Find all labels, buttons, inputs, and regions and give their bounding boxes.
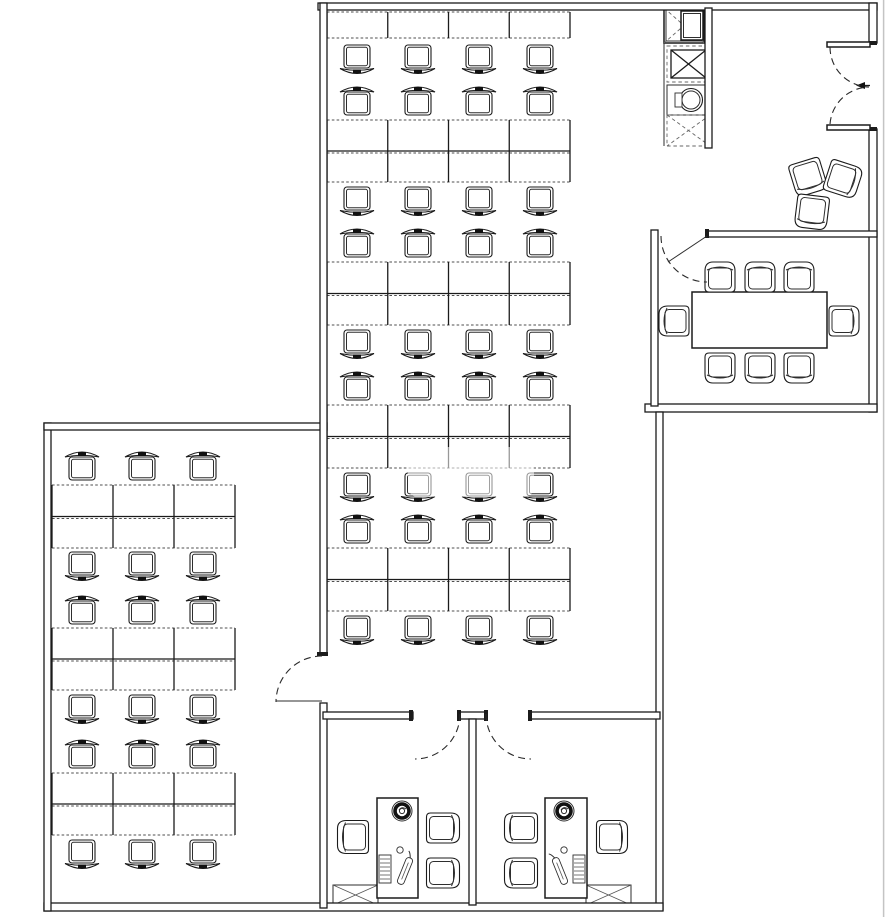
task-chair bbox=[340, 473, 374, 502]
chair-seat bbox=[466, 330, 492, 353]
wall-conference-bottom-wall bbox=[645, 404, 877, 412]
chair-seat bbox=[527, 520, 553, 543]
task-chair bbox=[401, 515, 435, 543]
chair-back-tick bbox=[536, 498, 544, 502]
wall-right-wall-upper bbox=[869, 3, 877, 43]
chair-seat bbox=[405, 616, 431, 639]
chair-back-tick bbox=[78, 452, 86, 456]
task-chair bbox=[462, 515, 496, 543]
chair-back-tick bbox=[353, 212, 361, 216]
wall-cap bbox=[409, 710, 413, 721]
wall-cap bbox=[317, 652, 328, 656]
wall-conference-left-wall bbox=[651, 230, 658, 406]
chair-seat bbox=[69, 695, 95, 718]
conference-chair bbox=[784, 353, 814, 383]
task-chair bbox=[523, 87, 557, 115]
chair-back-tick bbox=[414, 212, 422, 216]
desk-bank bbox=[327, 120, 570, 182]
chair-seat bbox=[405, 187, 431, 210]
task-chair bbox=[462, 372, 496, 400]
chair-seat bbox=[69, 840, 95, 863]
chair-back-tick bbox=[536, 641, 544, 645]
task-chair bbox=[462, 87, 496, 115]
wall-bottom-wall bbox=[44, 903, 663, 911]
desk-bank bbox=[327, 548, 570, 611]
shaft-dashed-x bbox=[667, 115, 710, 146]
task-chair bbox=[401, 330, 435, 359]
task-chair bbox=[340, 229, 374, 257]
chair-back-tick bbox=[138, 596, 146, 600]
entry-door-leaf bbox=[827, 42, 870, 47]
floor-plan-drawing bbox=[0, 0, 885, 917]
task-chair bbox=[401, 187, 435, 216]
chair-back-tick bbox=[414, 355, 422, 359]
chair-seat bbox=[344, 616, 370, 639]
chair-back-tick bbox=[414, 498, 422, 502]
task-chair bbox=[523, 229, 557, 257]
watermark-patch bbox=[374, 648, 462, 694]
chair-seat bbox=[129, 457, 155, 480]
task-chair bbox=[65, 840, 99, 869]
chair-seat bbox=[344, 473, 370, 496]
task-chair bbox=[340, 372, 374, 400]
chair-seat bbox=[190, 601, 216, 624]
conference-chair bbox=[705, 353, 735, 383]
chair-back-tick bbox=[138, 577, 146, 581]
left-office bbox=[333, 798, 460, 905]
chair-seat bbox=[527, 45, 553, 68]
task-chair bbox=[401, 45, 435, 74]
task-chair bbox=[186, 840, 220, 869]
task-chair bbox=[125, 552, 159, 581]
wall-conference-top-wall bbox=[707, 231, 877, 237]
conference-chair bbox=[705, 262, 735, 292]
chair-seat bbox=[344, 45, 370, 68]
chair-back-tick bbox=[536, 212, 544, 216]
task-chair bbox=[125, 596, 159, 624]
chair-seat bbox=[527, 330, 553, 353]
door-swing-left-wing-door bbox=[276, 656, 322, 702]
conference-chair bbox=[745, 353, 775, 383]
wall-office-top-wall-center bbox=[459, 712, 486, 719]
chair-back-tick bbox=[536, 70, 544, 74]
lounge-chair bbox=[794, 194, 830, 231]
task-chair bbox=[186, 452, 220, 480]
chair-back-tick bbox=[199, 720, 207, 724]
wall-left-wing-left-wall bbox=[44, 423, 51, 911]
chair-back-tick bbox=[536, 229, 544, 233]
door-swing-conference-door bbox=[661, 236, 707, 282]
chair-back-tick bbox=[475, 372, 483, 376]
door-swing-office-left-door bbox=[415, 714, 460, 759]
floor-plan-canvas bbox=[0, 0, 885, 917]
executive-chair bbox=[597, 821, 628, 854]
task-chair bbox=[401, 229, 435, 257]
task-chair bbox=[462, 616, 496, 645]
chair-seat bbox=[129, 695, 155, 718]
wall-office-top-wall-left bbox=[323, 712, 413, 719]
chair-seat bbox=[69, 745, 95, 768]
appliance-drum bbox=[680, 89, 703, 112]
wall-top-wall bbox=[318, 3, 877, 10]
chair-seat bbox=[190, 695, 216, 718]
chair-back-tick bbox=[414, 70, 422, 74]
shaft-elevator bbox=[664, 8, 704, 43]
appliance-panel bbox=[675, 93, 682, 107]
service-shaft bbox=[664, 8, 710, 146]
wall-office-top-wall-right bbox=[530, 712, 660, 719]
task-chair bbox=[186, 740, 220, 768]
task-chair bbox=[340, 87, 374, 115]
desk-bank bbox=[52, 773, 235, 835]
task-chair bbox=[401, 616, 435, 645]
chair-back-tick bbox=[414, 229, 422, 233]
door-swing-office-right-door bbox=[486, 714, 531, 759]
chair-back-tick bbox=[78, 720, 86, 724]
chair-seat bbox=[527, 377, 553, 400]
chair-seat bbox=[466, 616, 492, 639]
chair-seat bbox=[190, 552, 216, 575]
chair-seat bbox=[190, 840, 216, 863]
task-chair bbox=[523, 187, 557, 216]
chair-seat bbox=[69, 457, 95, 480]
chair-back-tick bbox=[475, 212, 483, 216]
guest-chair bbox=[427, 858, 460, 888]
chair-back-tick bbox=[199, 577, 207, 581]
chair-back-tick bbox=[199, 452, 207, 456]
chair-seat bbox=[129, 745, 155, 768]
chair-seat bbox=[405, 330, 431, 353]
conference-chair bbox=[659, 306, 689, 336]
chair-seat bbox=[69, 601, 95, 624]
chair-back-tick bbox=[414, 515, 422, 519]
task-chair bbox=[462, 45, 496, 74]
chair-seat bbox=[190, 457, 216, 480]
chair-back-tick bbox=[414, 641, 422, 645]
chair-seat bbox=[344, 377, 370, 400]
shaft-appliance bbox=[667, 85, 710, 115]
guest-chair bbox=[427, 813, 460, 843]
task-chair bbox=[401, 87, 435, 115]
desk-bank bbox=[52, 485, 235, 548]
chair-seat bbox=[69, 552, 95, 575]
task-chair bbox=[65, 452, 99, 480]
chair-seat bbox=[344, 187, 370, 210]
chair-back-tick bbox=[475, 355, 483, 359]
chair-seat bbox=[129, 840, 155, 863]
executive-chair bbox=[338, 821, 369, 854]
task-chair bbox=[462, 187, 496, 216]
task-chair bbox=[523, 372, 557, 400]
chair-back-tick bbox=[199, 865, 207, 869]
entry-door-leaf bbox=[827, 125, 870, 130]
chair-back-tick bbox=[475, 641, 483, 645]
chair-seat bbox=[527, 616, 553, 639]
chair-back-tick bbox=[353, 229, 361, 233]
chair-seat bbox=[466, 187, 492, 210]
task-chair bbox=[125, 695, 159, 724]
guest-chair bbox=[505, 813, 538, 843]
mouse bbox=[561, 847, 567, 853]
conference-chair bbox=[745, 262, 775, 292]
chair-back-tick bbox=[138, 720, 146, 724]
task-chair bbox=[65, 740, 99, 768]
chair-back-tick bbox=[138, 740, 146, 744]
chair-seat bbox=[344, 520, 370, 543]
wall-right-wall-mid bbox=[869, 129, 877, 412]
chair-seat bbox=[466, 45, 492, 68]
chair-seat bbox=[527, 187, 553, 210]
chair-back-tick bbox=[353, 515, 361, 519]
guest-chair bbox=[505, 858, 538, 888]
wall-left-wing-top-wall bbox=[44, 423, 327, 430]
chair-seat bbox=[405, 520, 431, 543]
chair-back-tick bbox=[78, 740, 86, 744]
task-chair bbox=[186, 552, 220, 581]
task-chair bbox=[462, 229, 496, 257]
chair-back-tick bbox=[199, 740, 207, 744]
chair-back-tick bbox=[78, 865, 86, 869]
task-chair bbox=[125, 740, 159, 768]
chair-back-tick bbox=[536, 372, 544, 376]
chair-seat bbox=[527, 234, 553, 257]
chair-seat bbox=[344, 92, 370, 115]
chair-seat bbox=[405, 45, 431, 68]
chair-back-tick bbox=[353, 70, 361, 74]
task-chair bbox=[340, 515, 374, 543]
desk-bank bbox=[52, 628, 235, 690]
wall-cap bbox=[528, 710, 532, 721]
task-chair bbox=[340, 187, 374, 216]
chair-back-tick bbox=[536, 355, 544, 359]
task-chair bbox=[462, 330, 496, 359]
task-chair bbox=[340, 330, 374, 359]
chair-seat bbox=[190, 745, 216, 768]
conference-chair bbox=[784, 262, 814, 292]
chair-seat bbox=[405, 234, 431, 257]
chair-back-tick bbox=[536, 515, 544, 519]
lounge-chair bbox=[788, 157, 828, 198]
shaft-solid-x bbox=[667, 46, 710, 82]
chair-seat bbox=[344, 330, 370, 353]
task-chair bbox=[523, 515, 557, 543]
wall-lower-left-wall bbox=[320, 703, 327, 908]
chair-back-tick bbox=[138, 865, 146, 869]
chair-seat bbox=[466, 92, 492, 115]
conference-table bbox=[692, 292, 827, 348]
chair-seat bbox=[466, 234, 492, 257]
chair-seat bbox=[466, 520, 492, 543]
chair-back-tick bbox=[475, 498, 483, 502]
wall-center-right-wall bbox=[656, 412, 663, 910]
elevator-car bbox=[681, 11, 703, 40]
chair-back-tick bbox=[536, 87, 544, 91]
chair-back-tick bbox=[475, 229, 483, 233]
door-leaf bbox=[668, 236, 707, 262]
chair-seat bbox=[466, 377, 492, 400]
task-chair bbox=[523, 330, 557, 359]
chair-seat bbox=[344, 234, 370, 257]
chair-seat bbox=[129, 601, 155, 624]
task-chair bbox=[523, 45, 557, 74]
chair-seat bbox=[527, 92, 553, 115]
chair-seat bbox=[405, 377, 431, 400]
chair-back-tick bbox=[138, 452, 146, 456]
chair-back-tick bbox=[475, 87, 483, 91]
wall-office-divider-wall bbox=[469, 719, 476, 905]
chair-back-tick bbox=[353, 498, 361, 502]
door-swing-entry-door-top bbox=[830, 47, 869, 87]
task-chair bbox=[186, 695, 220, 724]
chair-back-tick bbox=[475, 70, 483, 74]
task-chair bbox=[65, 552, 99, 581]
chair-back-tick bbox=[78, 596, 86, 600]
task-chair bbox=[340, 45, 374, 74]
task-chair bbox=[65, 596, 99, 624]
conference-chair bbox=[829, 306, 859, 336]
mouse bbox=[397, 847, 403, 853]
chair-back-tick bbox=[199, 596, 207, 600]
wall-center-left-wall bbox=[320, 3, 327, 655]
task-chair bbox=[340, 616, 374, 645]
task-chair bbox=[523, 616, 557, 645]
watermark-patch bbox=[408, 447, 534, 497]
chair-back-tick bbox=[414, 372, 422, 376]
task-chair bbox=[125, 452, 159, 480]
lounge-chair bbox=[822, 159, 863, 200]
chair-back-tick bbox=[475, 515, 483, 519]
chair-seat bbox=[129, 552, 155, 575]
wall-shaft-right-wall bbox=[705, 8, 712, 148]
door-swing-entry-door-bottom bbox=[830, 87, 869, 124]
desk-bank bbox=[327, 262, 570, 325]
chair-back-tick bbox=[353, 87, 361, 91]
task-chair bbox=[186, 596, 220, 624]
chair-back-tick bbox=[414, 87, 422, 91]
chair-seat bbox=[405, 92, 431, 115]
task-chair bbox=[401, 372, 435, 400]
chair-back-tick bbox=[353, 355, 361, 359]
conference-room bbox=[659, 262, 859, 383]
right-office bbox=[505, 798, 632, 905]
chair-back-tick bbox=[78, 577, 86, 581]
desk-bank bbox=[327, 12, 570, 38]
chair-back-tick bbox=[353, 372, 361, 376]
chair-back-tick bbox=[353, 641, 361, 645]
task-chair bbox=[65, 695, 99, 724]
task-chair bbox=[125, 840, 159, 869]
